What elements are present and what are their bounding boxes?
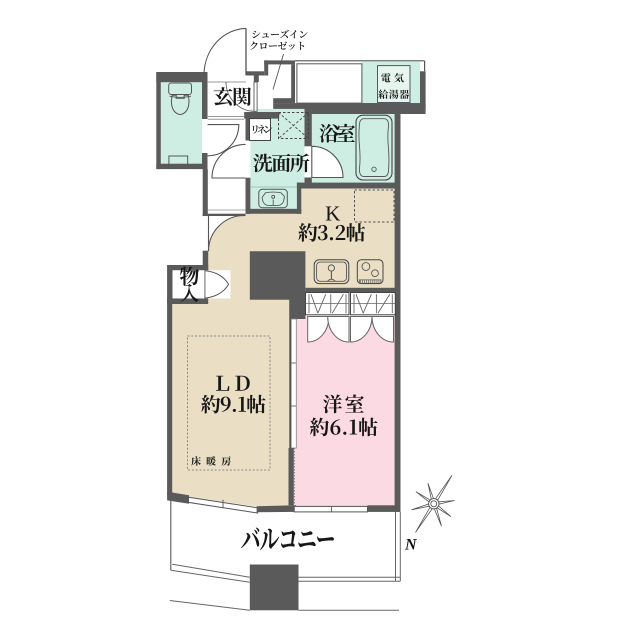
svg-text:K: K	[325, 202, 341, 226]
svg-text:N: N	[404, 537, 418, 554]
